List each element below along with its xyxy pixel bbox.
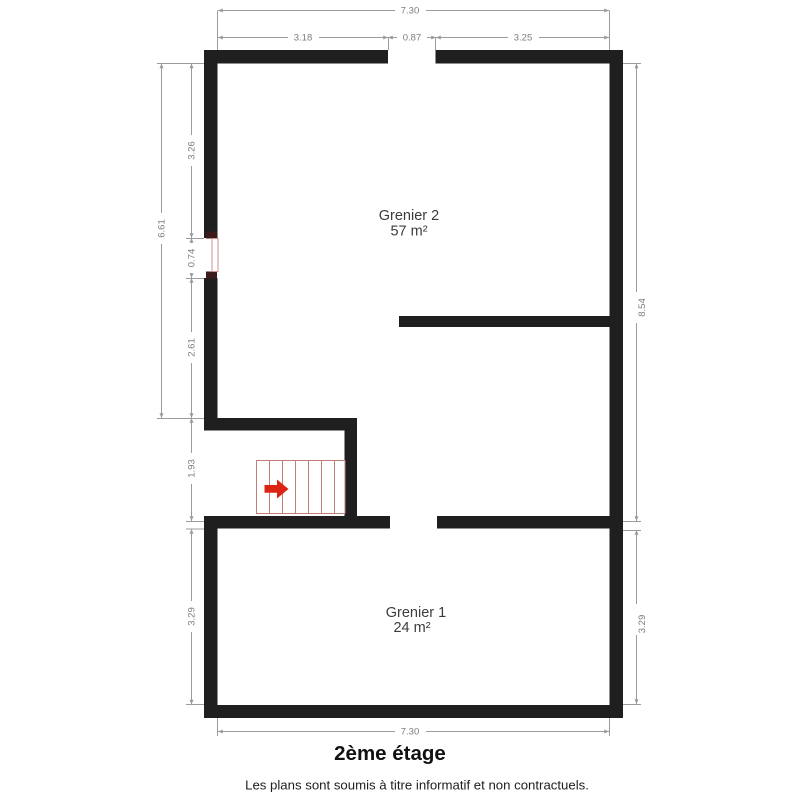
svg-text:Grenier 2: Grenier 2 [379, 208, 439, 224]
svg-text:24 m²: 24 m² [393, 620, 430, 636]
svg-text:3.18: 3.18 [294, 33, 313, 44]
svg-text:57 m²: 57 m² [390, 224, 427, 240]
svg-text:6.61: 6.61 [157, 219, 168, 238]
svg-text:2ème étage: 2ème étage [334, 742, 446, 765]
svg-text:3.25: 3.25 [514, 33, 533, 44]
svg-text:1.93: 1.93 [187, 459, 198, 478]
svg-text:3.29: 3.29 [187, 607, 198, 626]
svg-text:0.74: 0.74 [187, 249, 198, 268]
svg-text:3.29: 3.29 [637, 615, 648, 634]
svg-text:7.30: 7.30 [401, 6, 420, 17]
svg-text:3.26: 3.26 [187, 141, 198, 160]
svg-text:8.54: 8.54 [637, 298, 648, 317]
svg-text:0.87: 0.87 [403, 33, 422, 44]
svg-text:Les plans sont soumis à titre: Les plans sont soumis à titre informatif… [245, 778, 589, 793]
svg-text:2.61: 2.61 [187, 338, 198, 357]
svg-text:7.30: 7.30 [401, 727, 420, 738]
svg-text:Grenier 1: Grenier 1 [386, 605, 446, 621]
